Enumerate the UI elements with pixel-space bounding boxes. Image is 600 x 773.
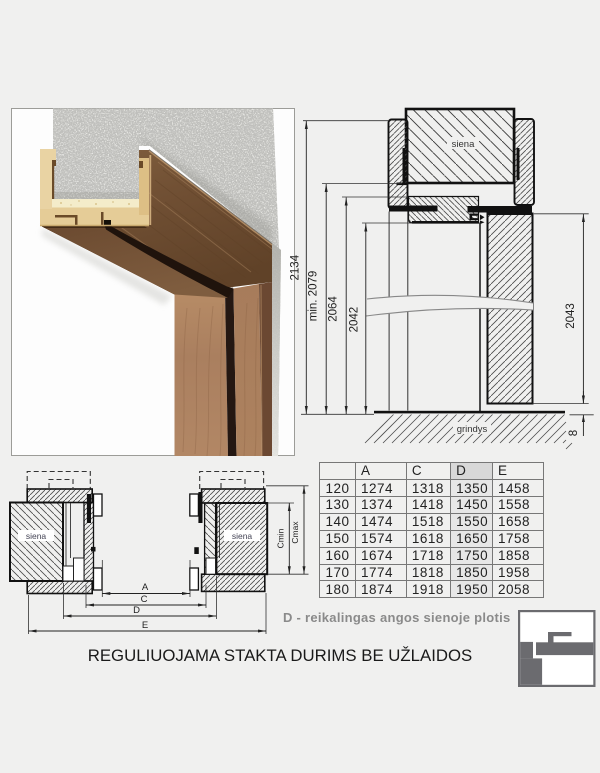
svg-text:siena: siena [232,531,253,541]
svg-text:siena: siena [452,139,475,150]
svg-text:Cmax: Cmax [290,521,300,544]
svg-text:2042: 2042 [349,307,361,333]
svg-text:A: A [142,582,149,593]
svg-text:D: D [133,605,140,616]
svg-text:2134: 2134 [290,254,302,280]
svg-text:Cmin: Cmin [276,528,286,548]
svg-text:8: 8 [568,430,580,436]
svg-text:grindys: grindys [457,424,488,435]
svg-text:siena: siena [26,531,47,541]
svg-text:min. 2079: min. 2079 [308,271,320,322]
svg-text:2043: 2043 [565,303,577,329]
svg-text:C: C [141,594,148,605]
svg-text:E: E [142,620,148,631]
svg-text:2064: 2064 [328,296,340,322]
